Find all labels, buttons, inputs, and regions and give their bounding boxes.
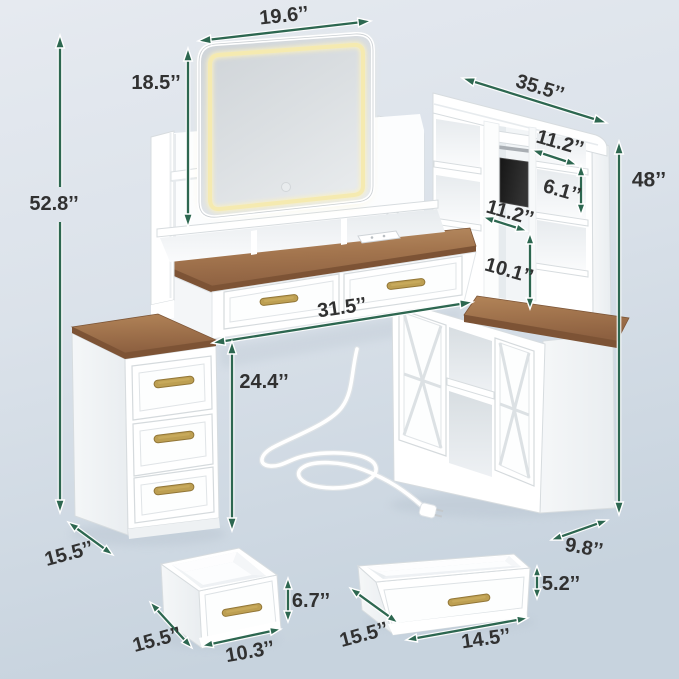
svg-text:48’’: 48’’ <box>632 169 666 192</box>
svg-text:52.8’’: 52.8’’ <box>29 193 78 215</box>
svg-text:5.2’’: 5.2’’ <box>542 573 580 595</box>
svg-text:6.7’’: 6.7’’ <box>292 590 330 612</box>
svg-text:24.4’’: 24.4’’ <box>239 371 288 393</box>
svg-text:18.5’’: 18.5’’ <box>131 72 180 94</box>
